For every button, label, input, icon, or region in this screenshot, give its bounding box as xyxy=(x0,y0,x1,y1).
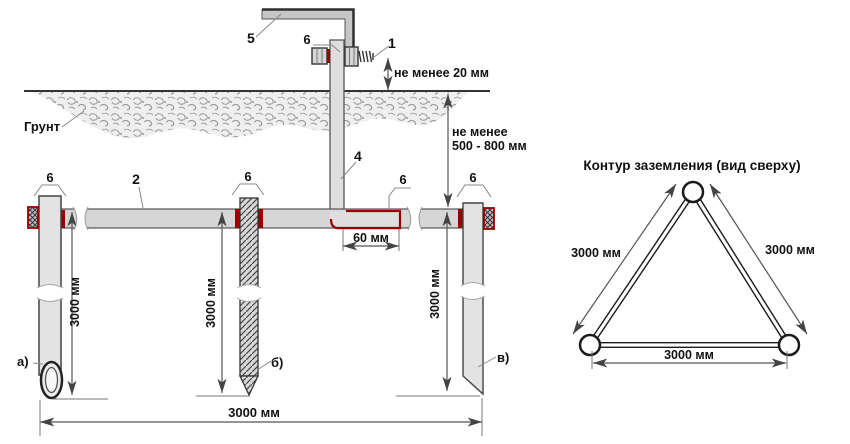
weld-seam-bolt xyxy=(327,49,330,63)
label-part-4: 4 xyxy=(354,148,362,164)
dim-depth-a-label: 3000 мм xyxy=(68,277,82,327)
label-part-5: 5 xyxy=(247,30,255,46)
diagram-canvas: 5 Грунт 6 1 не менее 20 мм 4 не менее 50… xyxy=(0,0,850,444)
weld-seam-b-right xyxy=(258,209,263,228)
label-weld-6-a: 6 xyxy=(46,170,53,185)
weld-plate-a xyxy=(28,207,38,228)
rod-tip xyxy=(240,376,258,395)
dim-min500-label-2: 500 - 800 мм xyxy=(452,139,527,153)
top-view-title: Контур заземления (вид сверху) xyxy=(583,158,800,173)
dim-side-left-label: 3000 мм xyxy=(571,246,621,260)
dim-depth-v-label: 3000 мм xyxy=(428,269,442,319)
label-weld-6-bolt: 6 xyxy=(303,32,310,47)
grounding-diagram: 5 Грунт 6 1 не менее 20 мм 4 не менее 50… xyxy=(0,0,850,444)
ground-label: Грунт xyxy=(24,119,60,134)
dim-spacing-label: 3000 мм xyxy=(228,405,280,420)
dim-min500-label-1: не менее xyxy=(452,125,508,139)
electrode-node-top xyxy=(683,182,703,202)
top-view-dimensions xyxy=(573,184,807,369)
label-electrode-v: в) xyxy=(497,350,509,365)
dim-side-bottom-label: 3000 мм xyxy=(664,348,714,362)
electrode-node-right xyxy=(779,335,799,355)
bolt-head xyxy=(312,48,327,64)
bolt-thread xyxy=(359,51,373,62)
label-weld-6-v: 6 xyxy=(469,170,476,185)
label-part-1: 1 xyxy=(388,35,396,51)
dim-side-right-label: 3000 мм xyxy=(765,243,815,257)
electrode-node-left xyxy=(580,335,600,355)
label-weld-6-b: 6 xyxy=(244,169,251,184)
label-electrode-a: а) xyxy=(17,354,29,369)
rod-break-mark xyxy=(237,285,261,302)
electrode-a-pipe xyxy=(28,196,65,398)
pipe-end-inner xyxy=(46,368,58,393)
pipe-break-mark xyxy=(37,285,63,302)
weld-plate-v xyxy=(484,208,494,229)
top-view: Контур заземления (вид сверху) xyxy=(571,158,815,369)
angle-break-mark xyxy=(461,283,485,300)
weld-seam-v xyxy=(458,209,463,228)
label-electrode-b: б) xyxy=(271,355,283,370)
electrode-b-rod xyxy=(235,198,263,395)
dim-side-right xyxy=(710,184,807,334)
bolt-nut xyxy=(345,47,358,66)
electrode-v-angle xyxy=(458,203,494,394)
soil-texture xyxy=(30,92,468,138)
weld-seam-b-left xyxy=(235,209,240,228)
label-part-2: 2 xyxy=(132,171,140,187)
conductor-4-foot xyxy=(330,211,400,228)
dim-60mm-label: 60 мм xyxy=(353,231,389,245)
contour-triangle xyxy=(580,182,799,355)
cross-section-view: 5 Грунт 6 1 не менее 20 мм 4 не менее 50… xyxy=(17,10,527,437)
dim-depth-b-label: 3000 мм xyxy=(204,278,218,328)
dim-min20-label: не менее 20 мм xyxy=(394,66,489,80)
label-weld-6-strip: 6 xyxy=(399,172,406,187)
